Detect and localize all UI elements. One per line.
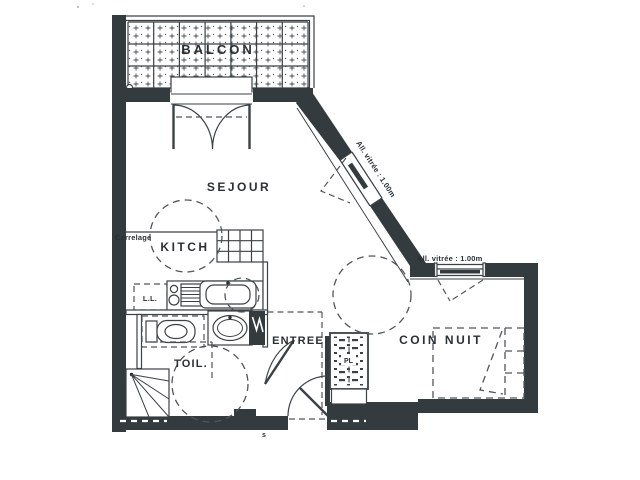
water-heater [249, 311, 265, 345]
entree-boundary-dash [268, 312, 323, 415]
floor-plan-page: BALCON SEJOUR KITCH TOIL. ENTREE COIN NU… [0, 0, 640, 480]
label-sill-diagonal: All. vitrée : 1.00m [354, 139, 397, 199]
label-door-mark: s [262, 432, 266, 439]
label-carrelage: Carrelage [115, 233, 151, 242]
shower [126, 369, 169, 417]
scan-noise [77, 3, 305, 8]
room-label-sejour: SEJOUR [207, 180, 271, 194]
label-closet-pl: PL [344, 358, 354, 365]
room-label-kitch: KITCH [160, 240, 209, 254]
window-bedroom [435, 263, 486, 301]
room-label-coin-nuit: COIN NUIT [399, 333, 483, 347]
floor-plan: BALCON SEJOUR KITCH TOIL. ENTREE COIN NU… [0, 0, 640, 480]
kitchen-tile-block [217, 230, 263, 262]
french-door-threshold [169, 77, 254, 106]
room-label-balcon: BALCON [181, 42, 255, 57]
label-washing-machine: L.L. [143, 294, 157, 303]
french-door [174, 104, 250, 149]
room-label-entree: ENTREE [272, 335, 324, 347]
washbasin [208, 311, 252, 345]
label-sill-bedroom: All. vitrée : 1.00m [417, 254, 483, 263]
room-label-toil: TOIL. [174, 358, 208, 370]
